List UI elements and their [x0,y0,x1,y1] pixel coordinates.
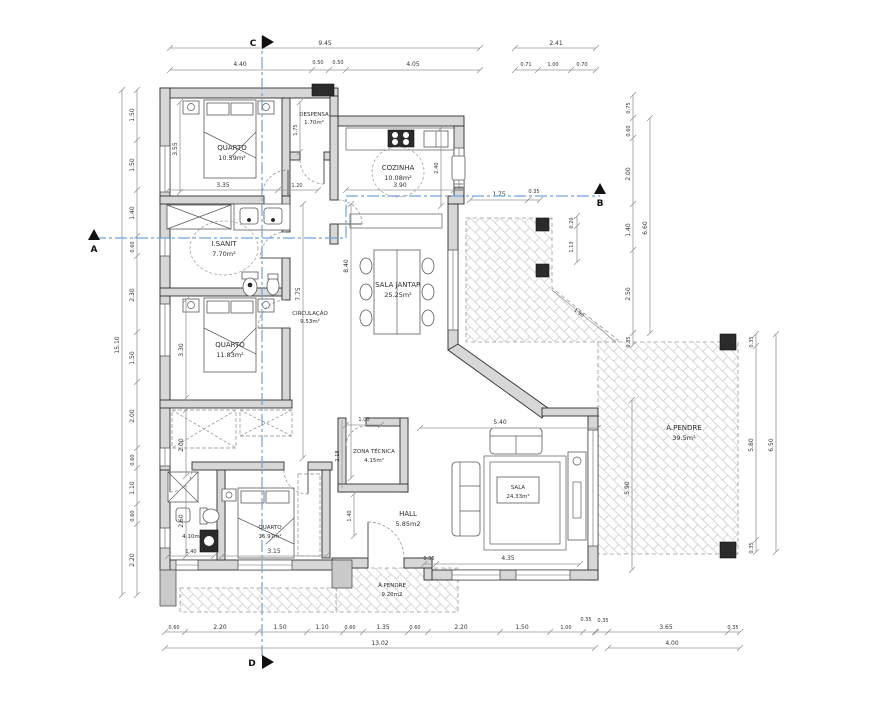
dim-label: 1.50 [129,351,136,365]
wall [400,418,408,492]
marker-letter: A [91,245,98,255]
room-label-circulacao: CIRCULAÇÃO 9.53m² [292,310,328,325]
toilet [200,508,219,524]
pillar [720,334,736,350]
dim-label: 4.05 [406,61,420,68]
window [160,448,170,466]
window [516,570,570,580]
svg-text:CIRCULAÇÃO: CIRCULAÇÃO [292,310,328,317]
window [176,560,198,570]
dim-label: 1.00 [547,62,558,68]
wall [308,462,332,470]
svg-text:DESPENSA: DESPENSA [299,112,329,118]
dim-label: 1.10 [129,481,136,495]
room-label-isanit2: 4.10m² [182,533,202,540]
toilet [242,272,258,296]
dim-label: 1.20 [291,183,302,189]
door-isanit1 [260,232,286,258]
dim-label: 1.00 [358,417,369,423]
svg-text:24.33m²: 24.33m² [506,493,529,500]
dim-label: 1.75 [492,191,506,198]
dim-label: 2.40 [434,162,440,173]
svg-text:5.85m2: 5.85m2 [396,520,421,528]
pillar [536,264,549,277]
dim-label: 0.35 [749,542,755,553]
dim-label: 0.60 [344,625,355,631]
wall [160,196,264,204]
dim-label: 2.20 [213,624,227,631]
floor-plan-drawing: 9.45 2.41 4.40 0.50 0.50 4.05 0.71 1.00 … [0,0,876,720]
patio-hatch [466,218,618,342]
dim-label: 0.35 [423,556,434,562]
dim-label: 13.02 [371,640,388,647]
svg-text:25.25m²: 25.25m² [384,291,412,299]
dim-label: 0.71 [520,62,531,68]
dim-label: 1.00 [560,625,571,631]
window [160,528,170,548]
dim-label: 0.35 [727,625,738,631]
dim-label: 2.00 [625,167,632,181]
dim-label: 1.40 [625,223,632,237]
dim-label: 0.50 [312,60,323,66]
svg-text:ZONA TÉCNICA: ZONA TÉCNICA [353,447,395,455]
dim-label: 2.50 [625,287,632,301]
window [160,304,170,356]
dim-label: 1.40 [185,549,196,555]
svg-text:I.SANIT: I.SANIT [211,240,237,248]
dim-label: 5.90 [624,481,631,495]
dim-label: 1.40 [347,510,353,521]
svg-text:SALA JANTAR: SALA JANTAR [375,281,421,289]
dim-label: 1.10 [315,624,329,631]
dim-label: 0.60 [626,125,632,136]
svg-text:Á.PENDRE: Á.PENDRE [666,423,701,432]
bed-quarto3 [222,474,320,558]
dim-label: 1.50 [129,158,136,172]
walkway-hatch [180,588,336,612]
svg-text:10.08m²: 10.08m² [384,174,412,182]
wall [160,400,292,408]
wall [160,88,338,98]
wall [542,408,598,416]
dim-label: 0.35 [580,617,591,623]
marker-letter: D [248,659,255,669]
dim-label: 1.50 [515,624,529,631]
svg-text:QUARTO: QUARTO [215,341,245,349]
dim-label: 0.60 [130,510,136,521]
wall [282,98,290,196]
section-marker-a: A [88,229,100,255]
dim-label: 0.75 [626,102,632,113]
svg-text:16.97m²: 16.97m² [258,533,281,540]
dim-label: 2.20 [129,553,136,567]
window [160,146,170,192]
dim-label: 6.50 [768,438,775,452]
dim-label: 3.55 [172,142,179,156]
dim-label: 2.00 [129,409,136,423]
dim-label: 0.60 [130,454,136,465]
dim-label: 15.10 [114,336,121,353]
dim-label: 1.13 [569,241,575,252]
room-label-hall: HALL 5.85m2 [396,510,421,528]
bed-quarto2 [183,298,274,372]
dim-label: 5.40 [493,419,507,426]
dim-label: 1.50 [273,624,287,631]
dim-label: 0.35 [528,189,539,195]
dim-label: 3.15 [267,548,281,555]
dim-label: 8.40 [343,259,350,273]
wall [322,470,330,558]
chimney-block [312,84,334,96]
window [238,560,292,570]
dim-label: 2.18 [335,450,341,461]
svg-text:1.70m²: 1.70m² [304,119,324,126]
dim-label: 2.00 [178,438,185,452]
dim-label: 0.60 [409,625,420,631]
room-label-cozinha: COZINHA 10.08m² [372,147,424,197]
window [448,250,458,330]
porch-stub [160,570,176,606]
dim-label: 0.50 [332,60,343,66]
svg-text:COZINHA: COZINHA [382,164,415,172]
stove-icon [388,130,414,147]
wardrobes-dressing [172,410,292,448]
dim-label: 3.65 [659,624,673,631]
wall-diagonal [448,344,548,418]
wardrobe [298,474,320,556]
wall [330,116,338,200]
dim-label: 4.00 [665,640,679,647]
dim-label: 0.35 [749,336,755,347]
door-zona-tecnica [346,426,366,446]
wall [282,328,290,404]
dim-label: 5.80 [748,438,755,452]
wall [448,196,464,204]
svg-text:9.20m2: 9.20m2 [381,592,402,598]
dim-label: 3.35 [216,182,230,189]
wall [338,116,464,126]
dim-label: 1.50 [129,108,136,122]
marker-letter: B [597,199,604,209]
wall [330,96,338,118]
bathroom2-fixtures [168,472,219,552]
svg-text:SALA: SALA [511,485,526,491]
svg-text:HALL: HALL [399,510,417,518]
window [160,238,170,256]
porch-large-hatch [598,342,738,554]
dim-label: 2.20 [454,624,468,631]
dim-label: 1.35 [376,624,390,631]
dim-label: 2.41 [549,40,563,47]
wall [330,224,338,244]
bidet [267,274,279,295]
dim-label: 0.60 [168,625,179,631]
dim-label: 3.30 [178,343,185,357]
svg-text:QUARTO: QUARTO [258,525,282,531]
svg-text:9.53m²: 9.53m² [300,318,320,325]
dim-label: 7.75 [295,287,302,301]
dim-label: 1.40 [129,206,136,220]
svg-text:39.5m²: 39.5m² [672,434,696,442]
sofa-large [452,462,480,536]
pillar [536,218,549,231]
window [452,570,500,580]
svg-text:10.59m²: 10.59m² [218,154,246,162]
dim-label: 1.75 [293,124,299,135]
porch-stub [332,560,352,588]
wall [282,258,290,300]
dim-label: 2.30 [129,288,136,302]
window [588,430,598,546]
dim-label: 3.90 [393,182,407,189]
svg-text:4.15m²: 4.15m² [364,457,384,464]
wall [338,484,408,492]
floor-plan-canvas: 9.45 2.41 4.40 0.50 0.50 4.05 0.71 1.00 … [0,0,876,720]
room-label-despensa: DESPENSA 1.70m² [299,112,329,126]
marker-letter: C [250,39,257,49]
svg-text:11.83m²: 11.83m² [216,351,244,359]
dim-label: 0.20 [569,217,575,228]
dim-label: 6.60 [642,221,649,235]
svg-text:QUARTO: QUARTO [217,144,247,152]
svg-text:4.10m²: 4.10m² [182,533,202,540]
dim-label: 4.40 [233,61,247,68]
dim-label: 9.45 [318,40,332,47]
dim-label: 0.35 [597,618,608,624]
dim-label: 2.60 [178,514,185,528]
boiler [452,156,465,180]
pillar [720,542,736,558]
room-label-zona-tecnica: ZONA TÉCNICA 4.15m² [353,447,395,464]
kitchen-peninsula [350,214,442,228]
dim-label: 4.35 [501,555,515,562]
svg-text:Á.PENDRE: Á.PENDRE [378,582,406,589]
dim-label: 0.35 [626,336,632,347]
dim-label: 0.60 [130,241,136,252]
wall [192,462,284,470]
svg-text:7.70m²: 7.70m² [212,250,236,258]
dim-label: 0.70 [576,62,587,68]
bed-quarto1 [183,100,274,178]
section-marker-d: D [248,655,274,669]
door-despensa [300,160,324,184]
